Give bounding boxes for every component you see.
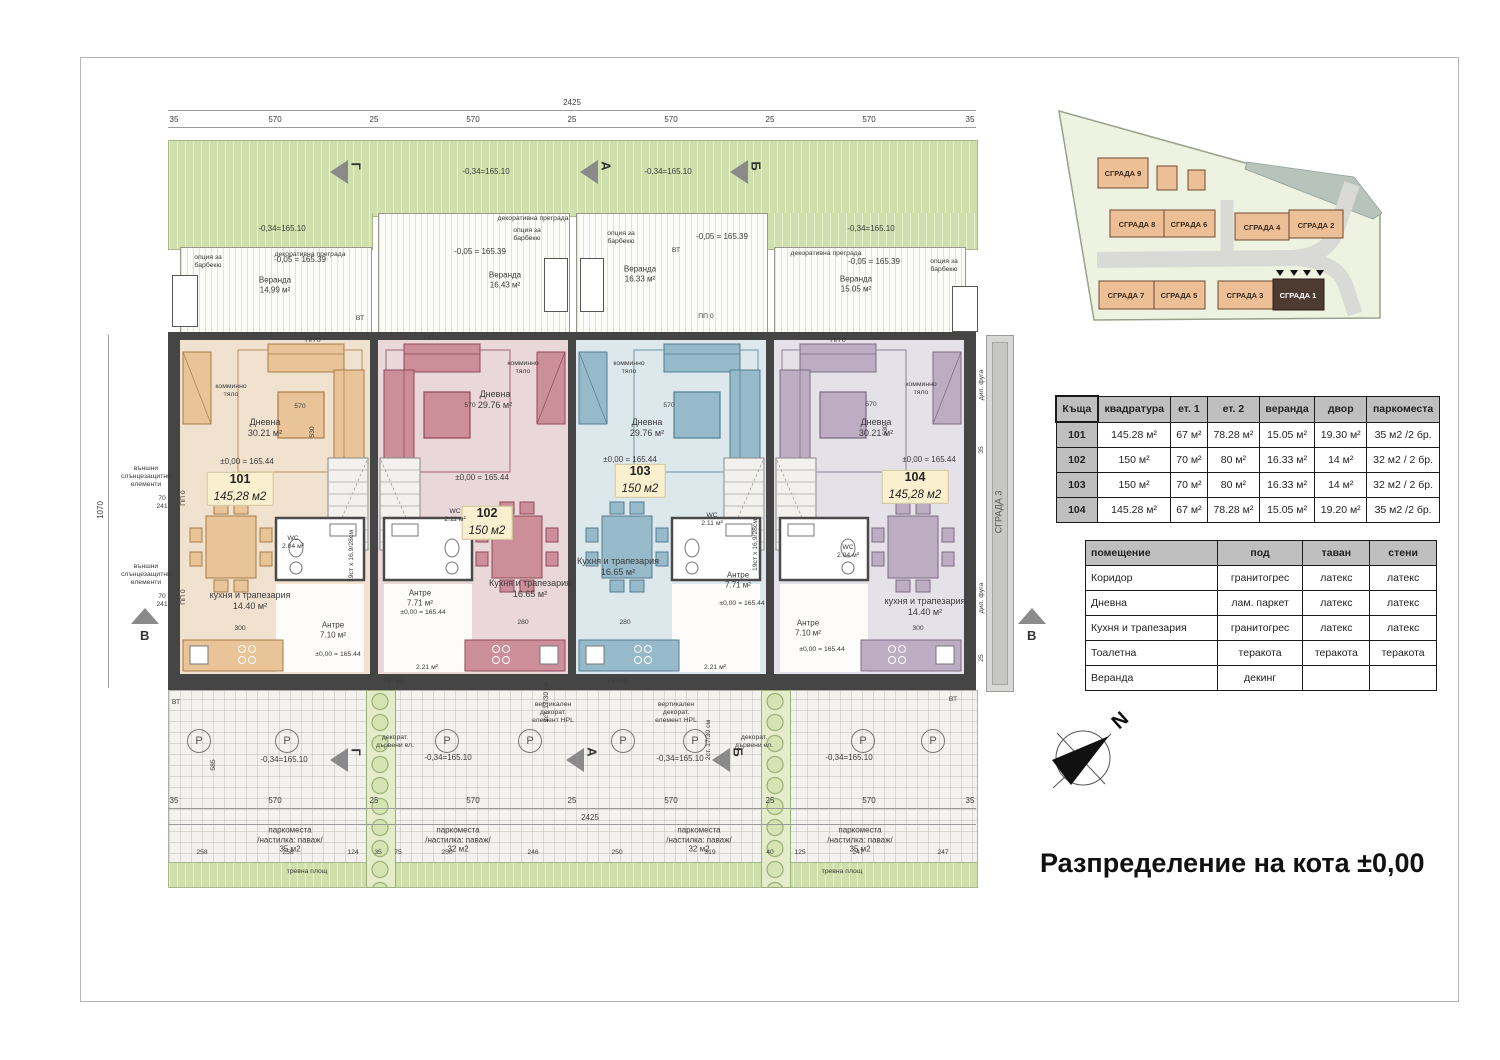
unit-area: 145,28 м2 xyxy=(889,489,942,501)
table-row: Дневна лам. паркет латекс латекс xyxy=(1086,591,1437,616)
col-header: паркоместа xyxy=(1367,396,1440,422)
cell: 70 м² xyxy=(1170,473,1207,498)
unit-tag-103: 103150 м2 xyxy=(615,464,666,498)
cell: 80 м² xyxy=(1207,448,1259,473)
table-row: Кухня и трапезария гранитогрес латекс ла… xyxy=(1086,616,1437,641)
section-marker-icon xyxy=(330,748,348,772)
lawn-top xyxy=(168,140,978,217)
section-letter: Б xyxy=(749,161,764,170)
site-building-label: СГРАДА 9 xyxy=(1105,169,1142,178)
unit-number: 102 xyxy=(469,507,506,521)
cell: 102 xyxy=(1056,448,1098,473)
site-building-label: СГРАДА 3 xyxy=(1227,291,1264,300)
cell: 15.05 м² xyxy=(1259,422,1314,448)
cell: 35 м2 /2 бр. xyxy=(1367,422,1440,448)
col-header: двор xyxy=(1315,396,1367,422)
furniture-103 xyxy=(576,340,766,674)
cell: 32 м2 / 2 бр. xyxy=(1367,473,1440,498)
table-row: Веранда декинг xyxy=(1086,666,1437,691)
parking-spot: P xyxy=(435,729,459,753)
col-header: ет. 1 xyxy=(1170,396,1207,422)
col-header: под xyxy=(1217,541,1303,566)
col-header: веранда xyxy=(1259,396,1314,422)
lawn-right xyxy=(765,213,978,250)
veranda-104 xyxy=(774,247,966,334)
dim-line-total-top xyxy=(168,110,976,111)
cell: 78.28 м² xyxy=(1207,422,1259,448)
site-building-label: СГРАДА 2 xyxy=(1298,221,1335,230)
cell: 101 xyxy=(1056,422,1098,448)
col-header: ет. 2 xyxy=(1207,396,1259,422)
cell: 14 м² xyxy=(1315,448,1367,473)
section-marker-icon xyxy=(330,160,348,184)
cell: 150 м² xyxy=(1098,473,1171,498)
cell: теракота xyxy=(1303,641,1370,666)
table-row: 104 145.28 м² 67 м² 78.28 м² 15.05 м² 19… xyxy=(1056,498,1440,523)
unit-tag-101: 101145,28 м2 xyxy=(207,472,274,506)
unit-tag-104: 104145,28 м2 xyxy=(882,470,949,504)
section-marker-icon xyxy=(712,748,730,772)
site-plan: СГРАДА 9 СГРАДА 8 СГРАДА 6 СГРАДА 4 СГРА… xyxy=(1042,100,1442,340)
veranda-101 xyxy=(180,247,372,334)
cell: Кухня и трапезария xyxy=(1086,616,1218,641)
parking-spot: P xyxy=(275,729,299,753)
site-building-label: СГРАДА 5 xyxy=(1161,291,1198,300)
furniture-104 xyxy=(774,340,964,674)
cell: 80 м² xyxy=(1207,473,1259,498)
site-building-label: СГРАДА 8 xyxy=(1119,220,1156,229)
cell: 67 м² xyxy=(1170,422,1207,448)
parking-spot: P xyxy=(851,729,875,753)
section-letter: В xyxy=(140,628,149,643)
barbecue-102 xyxy=(544,258,568,312)
cell: 19.30 м² xyxy=(1315,422,1367,448)
veranda-102 xyxy=(378,213,570,334)
site-building-label: СГРАДА 4 xyxy=(1244,223,1282,232)
parking-spot: P xyxy=(611,729,635,753)
unit-area: 150 м2 xyxy=(469,525,506,537)
col-header: стени xyxy=(1370,541,1437,566)
cell: гранитогрес xyxy=(1217,616,1303,641)
cell: 16.33 м² xyxy=(1259,448,1314,473)
section-marker-icon xyxy=(580,160,598,184)
cell: 70 м² xyxy=(1170,448,1207,473)
veranda-103 xyxy=(576,213,768,334)
architectural-sheet: { "title": "Разпределение на кота ±0,00"… xyxy=(0,0,1500,1060)
cell: латекс xyxy=(1303,591,1370,616)
cell: латекс xyxy=(1370,616,1437,641)
section-marker-icon xyxy=(730,160,748,184)
col-header: Къща xyxy=(1056,396,1098,422)
unit-number: 104 xyxy=(889,471,942,485)
parking-spot: P xyxy=(921,729,945,753)
parking-spot: P xyxy=(683,729,707,753)
section-marker-icon xyxy=(566,748,584,772)
dim-line-segments-bottom xyxy=(168,808,976,809)
cell: 19.20 м² xyxy=(1315,498,1367,523)
section-marker-icon xyxy=(1018,608,1046,624)
dim-line-left xyxy=(108,335,109,688)
section-letter: В xyxy=(1027,628,1036,643)
sheet-title: Разпределение на кота ±0,00 xyxy=(1040,848,1425,879)
cell: Веранда xyxy=(1086,666,1218,691)
site-building-label: СГРАДА 1 xyxy=(1280,291,1317,300)
section-letter: Б xyxy=(731,747,746,756)
north-label: N xyxy=(1108,708,1133,734)
cell: 150 м² xyxy=(1098,448,1171,473)
cell: 104 xyxy=(1056,498,1098,523)
site-building-label: СГРАДА 6 xyxy=(1171,220,1208,229)
cell xyxy=(1370,666,1437,691)
cell: Дневна xyxy=(1086,591,1218,616)
cell: 15.05 м² xyxy=(1259,498,1314,523)
cell: латекс xyxy=(1303,616,1370,641)
cell: латекс xyxy=(1370,566,1437,591)
lawn-bottom xyxy=(168,862,978,888)
col-header: квадратура xyxy=(1098,396,1171,422)
section-letter: А xyxy=(585,747,600,756)
cell: 35 м2 /2 бр. xyxy=(1367,498,1440,523)
site-building-label: СГРАДА 7 xyxy=(1108,291,1145,300)
furniture-101 xyxy=(180,340,370,674)
cell: теракота xyxy=(1217,641,1303,666)
cell: 78.28 м² xyxy=(1207,498,1259,523)
unit-number: 101 xyxy=(214,473,267,487)
shrub-strip-right xyxy=(761,690,791,888)
cell: 67 м² xyxy=(1170,498,1207,523)
barbecue-103 xyxy=(580,258,604,312)
lawn-left xyxy=(168,213,373,250)
cell: декинг xyxy=(1217,666,1303,691)
cell: латекс xyxy=(1303,566,1370,591)
cell: 32 м2 / 2 бр. xyxy=(1367,448,1440,473)
cell: 14 м² xyxy=(1315,473,1367,498)
section-letter: А xyxy=(599,161,614,170)
cell: 145.28 м² xyxy=(1098,498,1171,523)
cell xyxy=(1303,666,1370,691)
dim-line-total-bottom xyxy=(168,824,976,825)
cell: 145.28 м² xyxy=(1098,422,1171,448)
parking-spot: P xyxy=(187,729,211,753)
cell: 16.33 м² xyxy=(1259,473,1314,498)
table-row: 101 145.28 м² 67 м² 78.28 м² 15.05 м² 19… xyxy=(1056,422,1440,448)
cell: теракота xyxy=(1370,641,1437,666)
dim-line-segments-top xyxy=(168,127,976,128)
neighbour-building-strip xyxy=(986,335,1014,692)
cell: лам. паркет xyxy=(1217,591,1303,616)
unit-area: 150 м2 xyxy=(622,483,659,495)
section-marker-icon xyxy=(131,608,159,624)
finishes-table: помещение под таван стени Коридор гранит… xyxy=(1085,540,1437,691)
units-table: Къща квадратура ет. 1 ет. 2 веранда двор… xyxy=(1055,395,1440,523)
cell: 103 xyxy=(1056,473,1098,498)
section-letter: Г xyxy=(349,748,364,755)
cell: Коридор xyxy=(1086,566,1218,591)
section-letter: Г xyxy=(349,162,364,169)
col-header: таван xyxy=(1303,541,1370,566)
unit-area: 145,28 м2 xyxy=(214,491,267,503)
cell: гранитогрес xyxy=(1217,566,1303,591)
shrub-strip-left xyxy=(366,690,396,888)
cell: латекс xyxy=(1370,591,1437,616)
unit-tag-102: 102150 м2 xyxy=(462,506,513,540)
parking-spot: P xyxy=(518,729,542,753)
parking-area xyxy=(168,690,978,888)
barbecue-104 xyxy=(952,286,978,332)
barbecue-101 xyxy=(172,275,198,327)
site-small-block xyxy=(1157,166,1177,190)
site-small-block xyxy=(1188,170,1205,190)
compass-rose: N xyxy=(1035,700,1145,800)
table-row: 102 150 м² 70 м² 80 м² 16.33 м² 14 м² 32… xyxy=(1056,448,1440,473)
unit-number: 103 xyxy=(622,465,659,479)
table-row: Тоалетна теракота теракота теракота xyxy=(1086,641,1437,666)
cell: Тоалетна xyxy=(1086,641,1218,666)
col-header: помещение xyxy=(1086,541,1218,566)
table-row: Коридор гранитогрес латекс латекс xyxy=(1086,566,1437,591)
table-row: 103 150 м² 70 м² 80 м² 16.33 м² 14 м² 32… xyxy=(1056,473,1440,498)
